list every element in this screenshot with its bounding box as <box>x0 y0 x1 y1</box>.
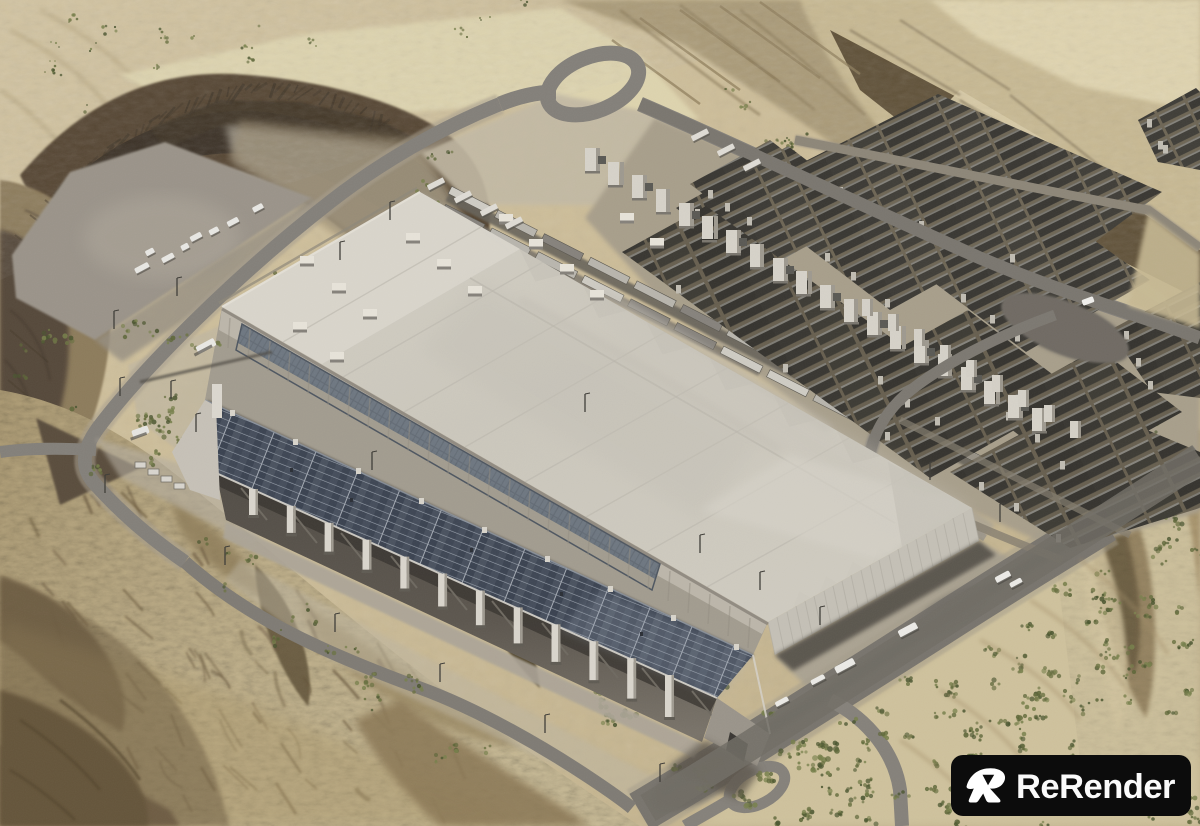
svg-text:ReRender: ReRender <box>1016 768 1175 806</box>
